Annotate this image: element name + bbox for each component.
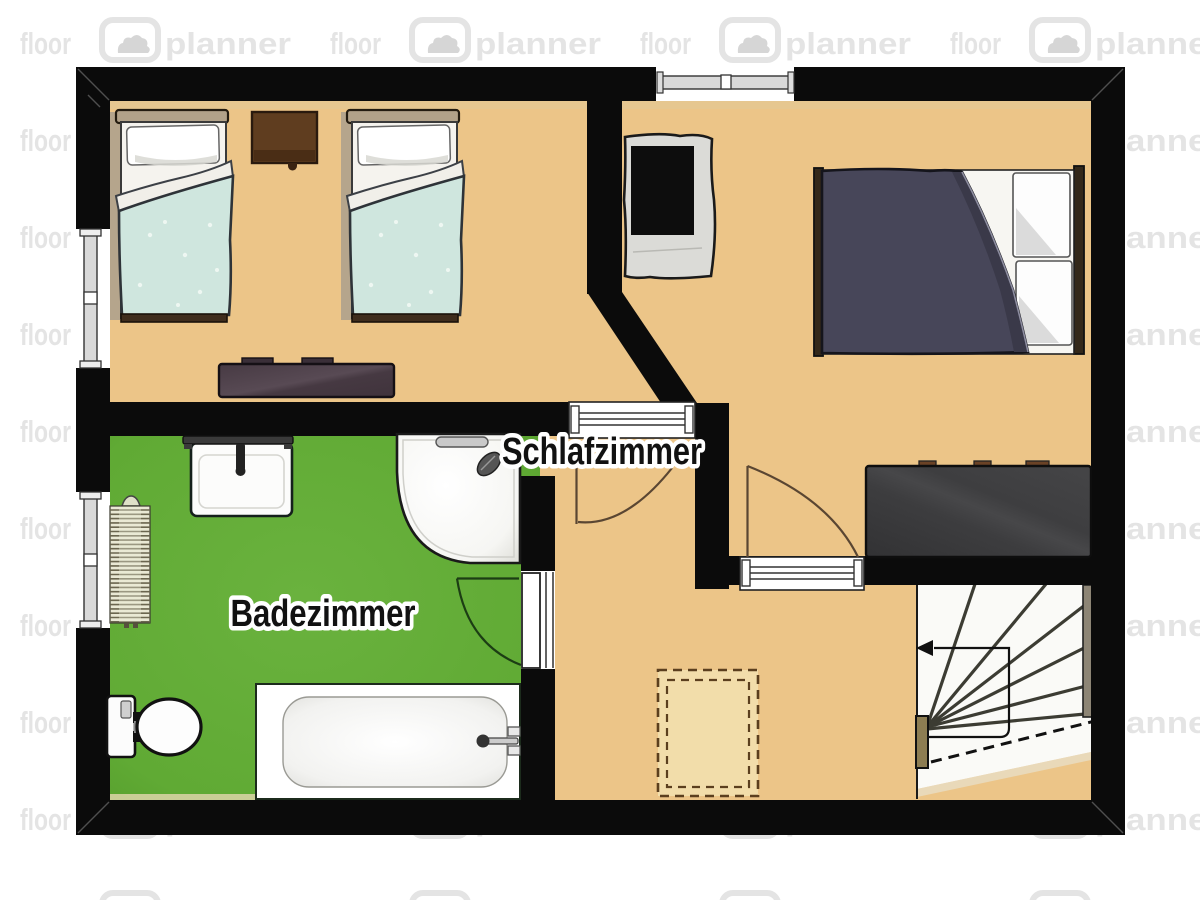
- svg-text:Schlafzimmer: Schlafzimmer: [502, 431, 702, 473]
- svg-text:Badezimmer: Badezimmer: [231, 593, 416, 635]
